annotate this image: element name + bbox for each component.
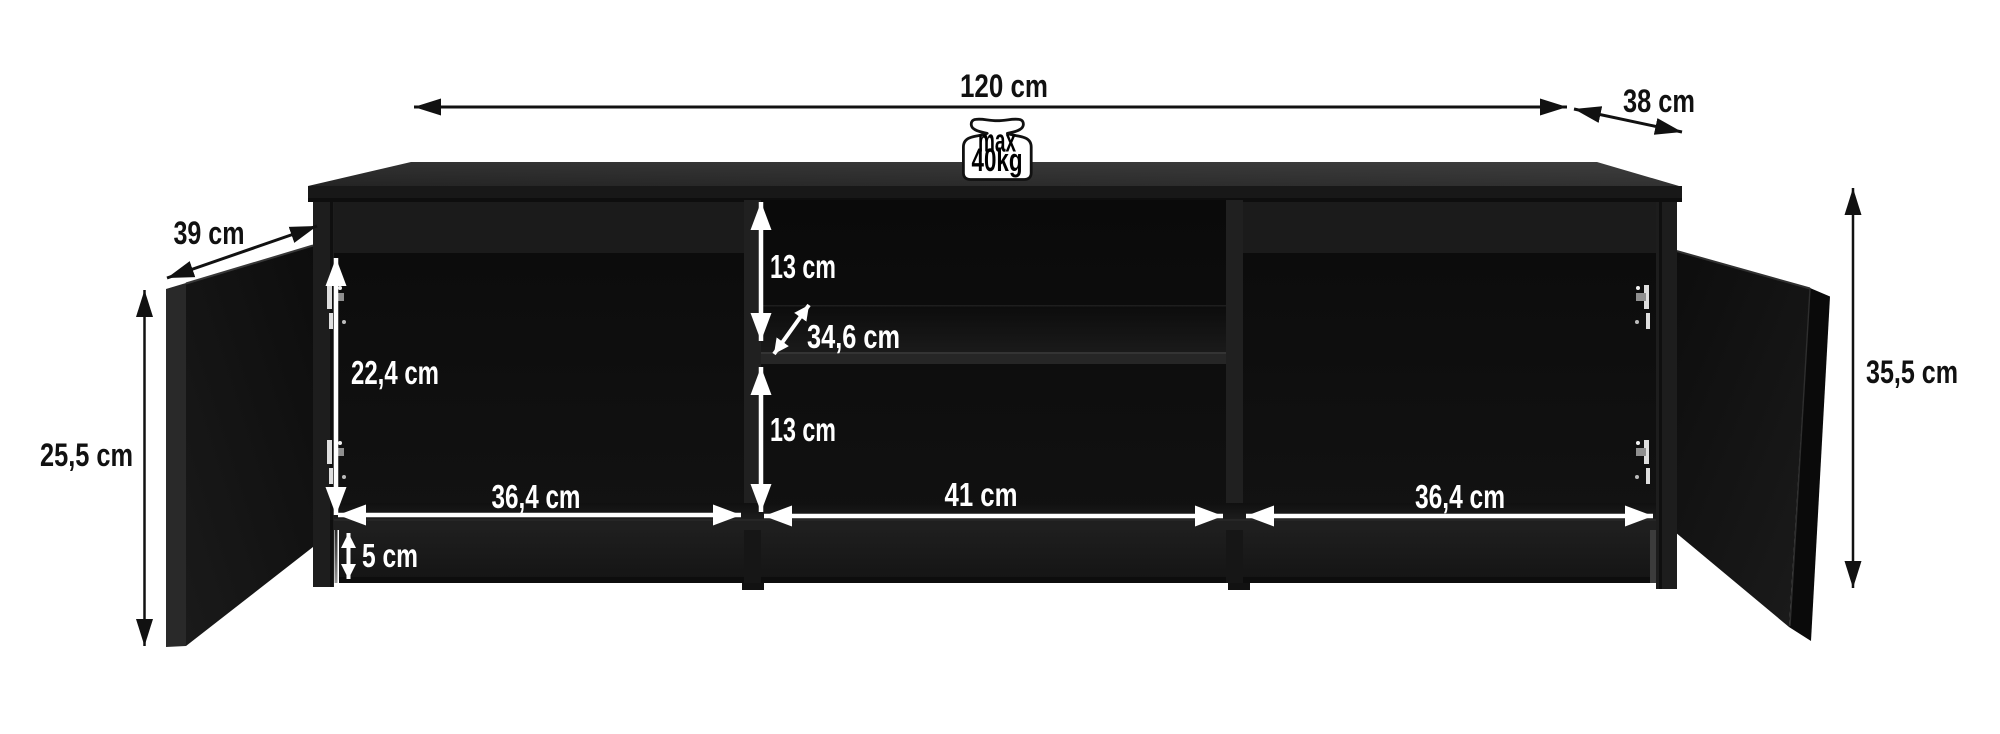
svg-text:13 cm: 13 cm — [770, 411, 836, 448]
svg-text:36,4 cm: 36,4 cm — [492, 478, 581, 515]
svg-text:40kg: 40kg — [972, 142, 1023, 178]
svg-text:38 cm: 38 cm — [1623, 83, 1695, 119]
svg-text:34,6 cm: 34,6 cm — [807, 318, 900, 355]
svg-text:25,5 cm: 25,5 cm — [40, 437, 133, 473]
svg-text:41 cm: 41 cm — [945, 476, 1018, 513]
svg-text:39 cm: 39 cm — [174, 215, 245, 251]
svg-text:35,5 cm: 35,5 cm — [1866, 354, 1958, 390]
svg-text:13 cm: 13 cm — [770, 248, 836, 285]
svg-text:5 cm: 5 cm — [362, 537, 418, 574]
svg-text:120 cm: 120 cm — [960, 68, 1048, 104]
svg-text:36,4 cm: 36,4 cm — [1415, 478, 1505, 515]
svg-text:22,4 cm: 22,4 cm — [351, 354, 439, 391]
